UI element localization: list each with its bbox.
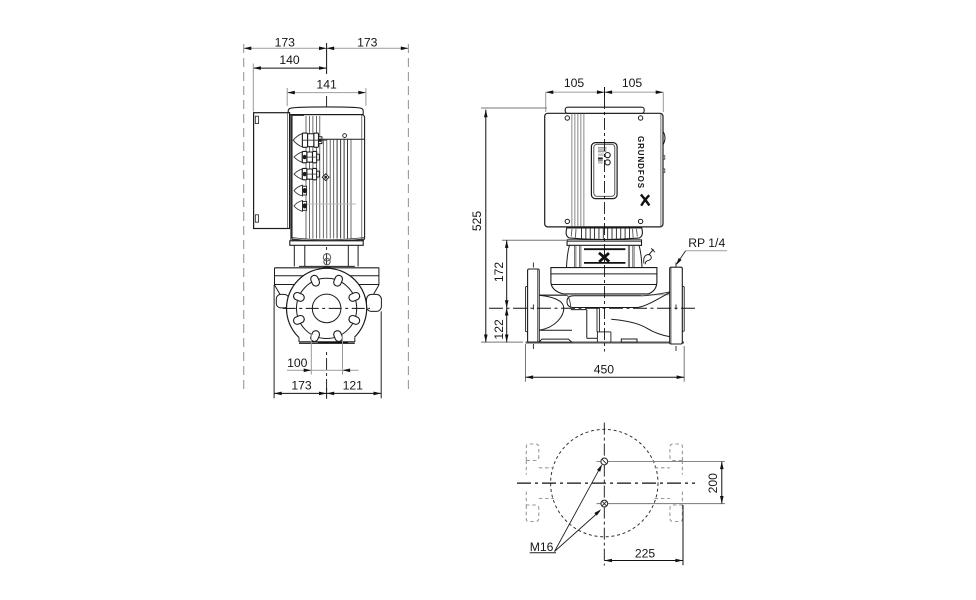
svg-text:140: 140 <box>279 53 300 67</box>
svg-text:200: 200 <box>706 473 720 494</box>
svg-text:173: 173 <box>357 35 378 49</box>
svg-text:105: 105 <box>622 76 643 90</box>
svg-text:141: 141 <box>316 77 337 91</box>
svg-text:122: 122 <box>492 319 506 340</box>
svg-text:173: 173 <box>291 378 312 392</box>
svg-text:105: 105 <box>564 76 585 90</box>
svg-text:172: 172 <box>492 262 506 283</box>
svg-text:173: 173 <box>275 35 296 49</box>
svg-text:GRUNDFOS: GRUNDFOS <box>636 136 645 189</box>
svg-text:M16: M16 <box>530 540 554 554</box>
svg-text:525: 525 <box>470 211 484 232</box>
svg-text:RP 1/4: RP 1/4 <box>688 236 725 250</box>
svg-text:450: 450 <box>594 362 615 376</box>
svg-text:100: 100 <box>287 356 308 370</box>
svg-text:225: 225 <box>635 547 656 561</box>
svg-text:121: 121 <box>343 378 364 392</box>
